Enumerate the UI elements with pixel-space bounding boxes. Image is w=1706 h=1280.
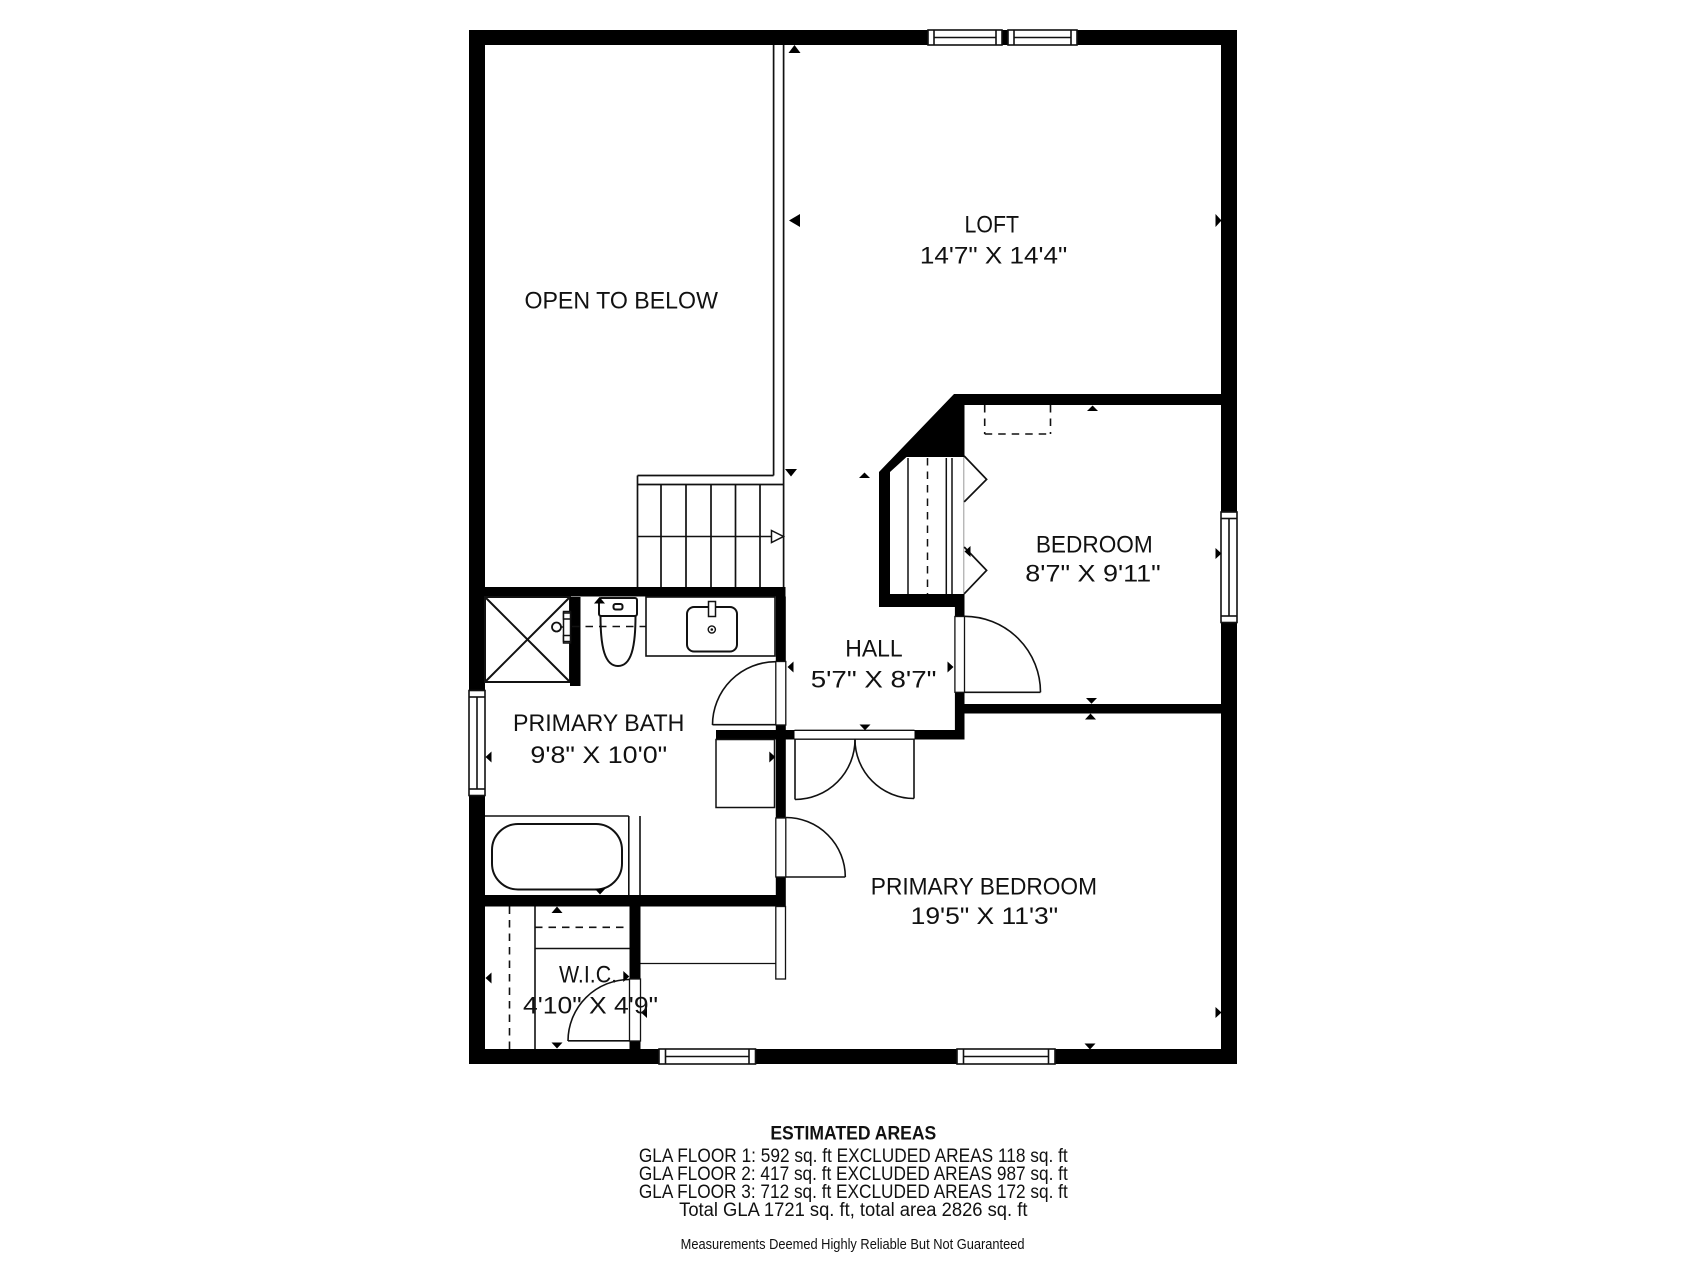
svg-text:W.I.C.: W.I.C.	[559, 961, 617, 988]
svg-text:Measurements Deemed Highly Rel: Measurements Deemed Highly Reliable But …	[681, 1237, 1025, 1253]
svg-text:8'7" X 9'11": 8'7" X 9'11"	[1025, 561, 1160, 588]
svg-text:PRIMARY BATH: PRIMARY BATH	[513, 710, 684, 737]
svg-text:PRIMARY BEDROOM: PRIMARY BEDROOM	[871, 874, 1097, 901]
svg-text:OPEN TO BELOW: OPEN TO BELOW	[524, 288, 718, 315]
svg-text:LOFT: LOFT	[965, 212, 1020, 239]
svg-text:5'7" X 8'7": 5'7" X 8'7"	[811, 667, 937, 694]
svg-text:19'5" X 11'3": 19'5" X 11'3"	[911, 903, 1059, 930]
svg-text:BEDROOM: BEDROOM	[1036, 531, 1153, 558]
svg-text:HALL: HALL	[845, 635, 902, 662]
svg-text:ESTIMATED AREAS: ESTIMATED AREAS	[770, 1124, 936, 1145]
svg-text:Total GLA 1721 sq. ft, total a: Total GLA 1721 sq. ft, total area 2826 s…	[679, 1200, 1028, 1221]
svg-text:14'7" X 14'4": 14'7" X 14'4"	[920, 243, 1067, 270]
svg-text:9'8" X 10'0": 9'8" X 10'0"	[530, 742, 667, 769]
svg-text:4'10" X 4'9": 4'10" X 4'9"	[523, 992, 658, 1019]
